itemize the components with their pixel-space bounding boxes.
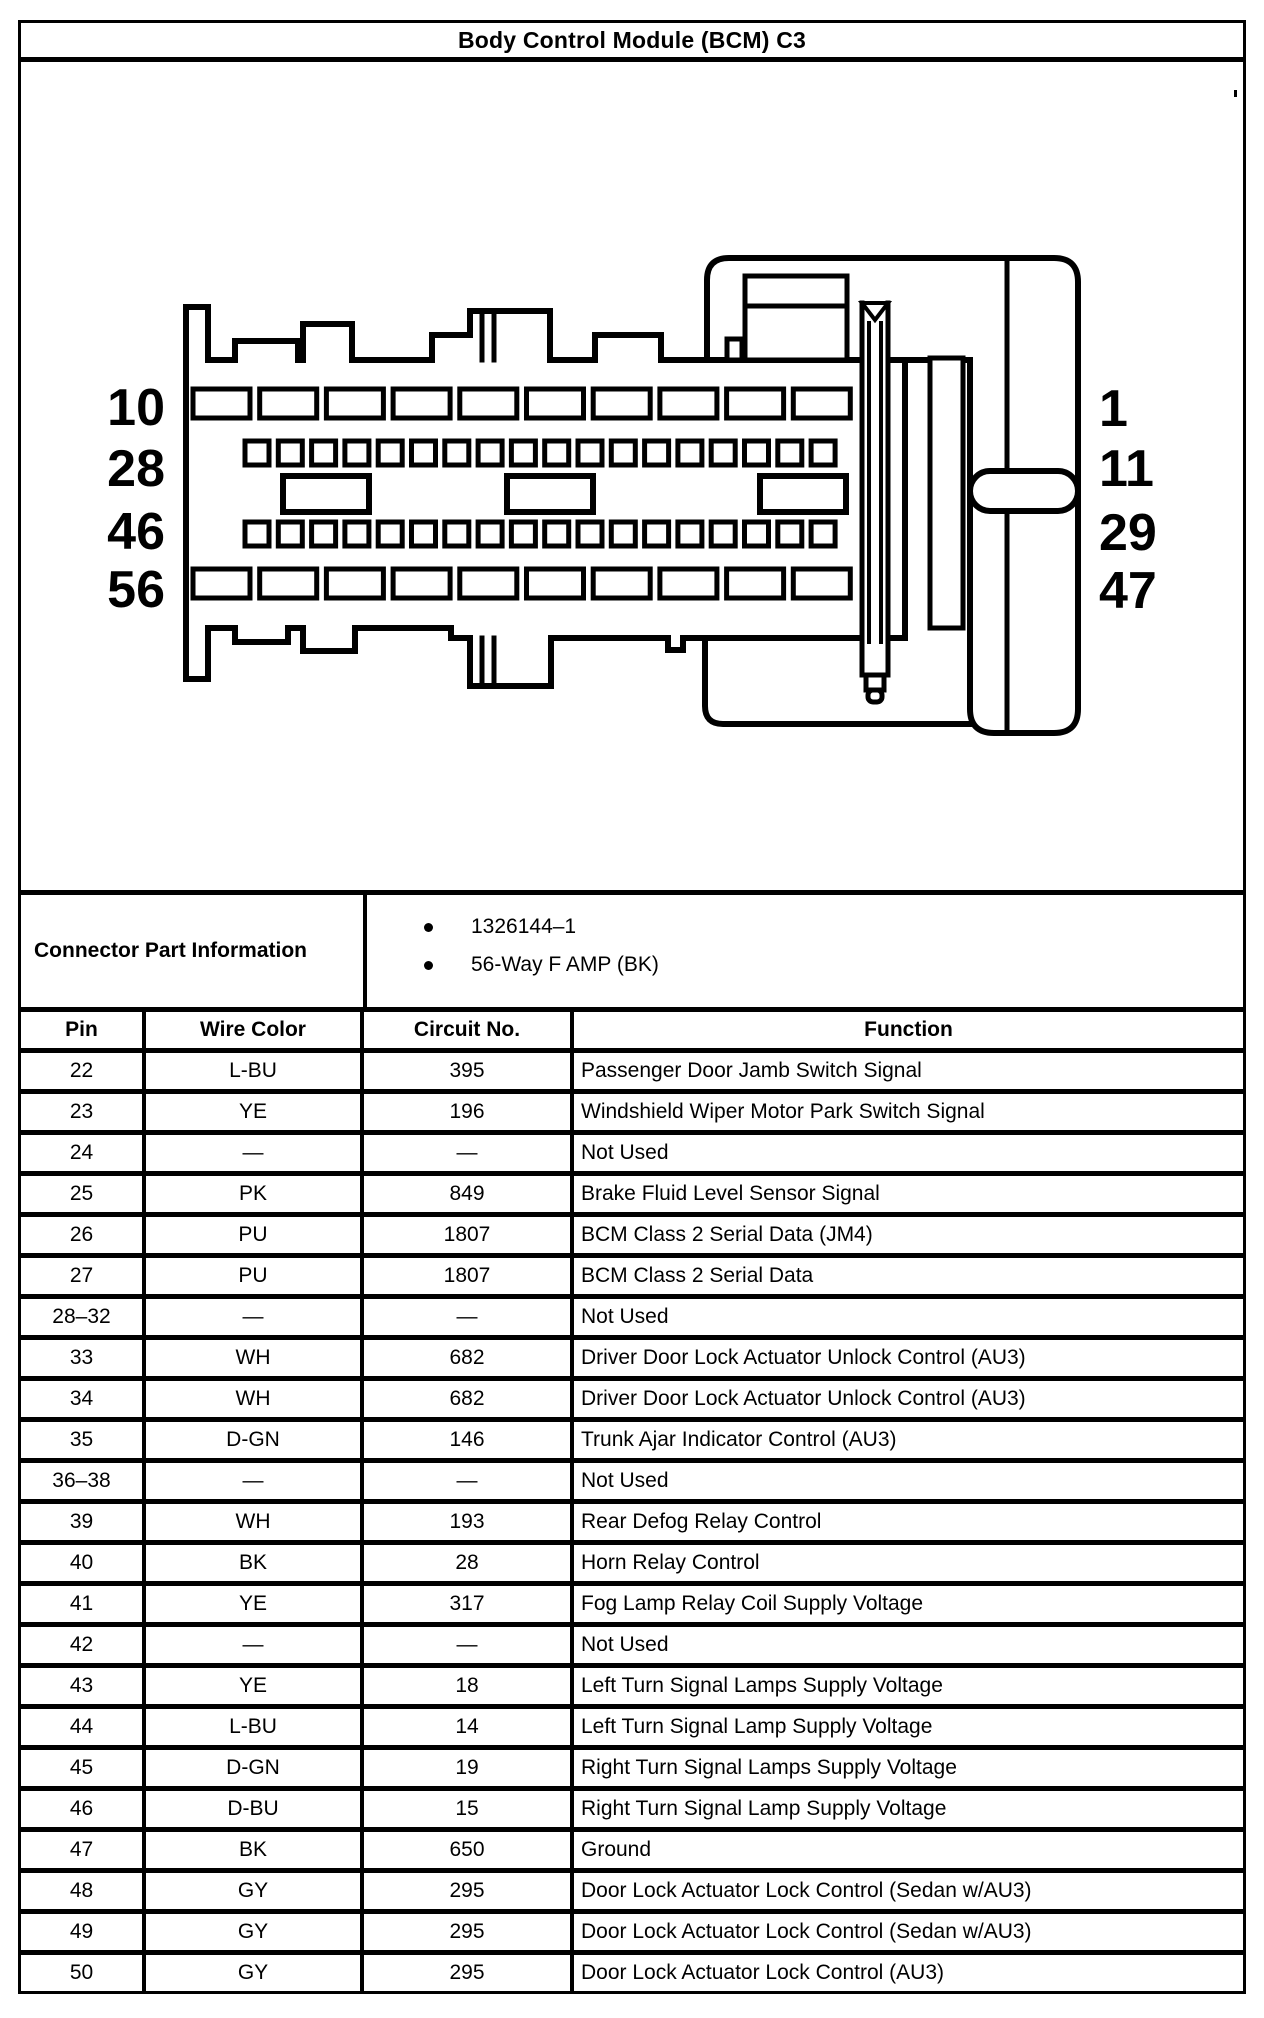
wire-color-cell: BK: [146, 1545, 364, 1581]
circuit-no-cell: 196: [364, 1094, 574, 1130]
pin-label-left-28: 28: [107, 440, 165, 498]
table-row: 44L-BU14Left Turn Signal Lamp Supply Vol…: [21, 1709, 1243, 1750]
wire-color-cell: GY: [146, 1873, 364, 1909]
latch-lance: [862, 303, 888, 702]
function-cell: Driver Door Lock Actuator Unlock Control…: [574, 1381, 1243, 1417]
part-info-text: 56-Way F AMP (BK): [471, 953, 659, 977]
function-cell: Left Turn Signal Lamp Supply Voltage: [574, 1709, 1243, 1745]
table-row: 33WH682Driver Door Lock Actuator Unlock …: [21, 1340, 1243, 1381]
table-row: 39WH193Rear Defog Relay Control: [21, 1504, 1243, 1545]
function-cell: Windshield Wiper Motor Park Switch Signa…: [574, 1094, 1243, 1130]
pin-cell: 34: [21, 1381, 146, 1417]
table-row: 42——Not Used: [21, 1627, 1243, 1668]
page-title: Body Control Module (BCM) C3: [21, 23, 1243, 62]
part-info-text: 1326144–1: [471, 915, 576, 939]
circuit-no-cell: 650: [364, 1832, 574, 1868]
connector-body-outline: [186, 307, 905, 686]
connector-part-info-label: Connector Part Information: [21, 895, 367, 1007]
manual-page: Body Control Module (BCM) C3: [18, 20, 1246, 1994]
band-small-bump: [727, 339, 742, 360]
wire-color-cell: WH: [146, 1504, 364, 1540]
wire-color-cell: —: [146, 1627, 364, 1663]
wire-color-cell: YE: [146, 1668, 364, 1704]
pin-cell: 46: [21, 1791, 146, 1827]
circuit-no-cell: 1807: [364, 1258, 574, 1294]
function-cell: Horn Relay Control: [574, 1545, 1243, 1581]
pin-cell: 43: [21, 1668, 146, 1704]
function-cell: Driver Door Lock Actuator Unlock Control…: [574, 1340, 1243, 1376]
pin-table-rows: 22L-BU395Passenger Door Jamb Switch Sign…: [21, 1053, 1243, 1991]
pin-cell: 28–32: [21, 1299, 146, 1335]
pin-table: Pin Wire Color Circuit No. Function 22L-…: [21, 1012, 1243, 1991]
pin-label-right-29: 29: [1099, 504, 1157, 562]
table-row: 41YE317Fog Lamp Relay Coil Supply Voltag…: [21, 1586, 1243, 1627]
header-wire-color: Wire Color: [146, 1012, 364, 1048]
circuit-no-cell: 295: [364, 1873, 574, 1909]
pin-cell: 24: [21, 1135, 146, 1171]
pin-cell: 26: [21, 1217, 146, 1253]
table-row: 28–32——Not Used: [21, 1299, 1243, 1340]
wire-color-cell: L-BU: [146, 1053, 364, 1089]
table-row: 35D-GN146Trunk Ajar Indicator Control (A…: [21, 1422, 1243, 1463]
function-cell: Not Used: [574, 1299, 1243, 1335]
pin-cell: 41: [21, 1586, 146, 1622]
circuit-no-cell: 15: [364, 1791, 574, 1827]
circuit-no-cell: 18: [364, 1668, 574, 1704]
circuit-no-cell: —: [364, 1299, 574, 1335]
pin-cell: 33: [21, 1340, 146, 1376]
table-row: 27PU1807BCM Class 2 Serial Data: [21, 1258, 1243, 1299]
pin-cell: 39: [21, 1504, 146, 1540]
table-row: 25PK849Brake Fluid Level Sensor Signal: [21, 1176, 1243, 1217]
function-cell: Brake Fluid Level Sensor Signal: [574, 1176, 1243, 1212]
wire-color-cell: WH: [146, 1381, 364, 1417]
connector-part-info: Connector Part Information 1326144–156-W…: [21, 895, 1243, 1012]
circuit-no-cell: —: [364, 1135, 574, 1171]
pin-label-right-47: 47: [1099, 562, 1157, 620]
pin-cell: 22: [21, 1053, 146, 1089]
circuit-no-cell: —: [364, 1627, 574, 1663]
pin-cell: 25: [21, 1176, 146, 1212]
function-cell: Trunk Ajar Indicator Control (AU3): [574, 1422, 1243, 1458]
circuit-no-cell: 849: [364, 1176, 574, 1212]
table-row: 40BK28Horn Relay Control: [21, 1545, 1243, 1586]
pin-cell: 23: [21, 1094, 146, 1130]
pin-cell: 48: [21, 1873, 146, 1909]
wire-color-cell: BK: [146, 1832, 364, 1868]
wire-color-cell: L-BU: [146, 1709, 364, 1745]
table-row: 45D-GN19Right Turn Signal Lamps Supply V…: [21, 1750, 1243, 1791]
lever-pill: [970, 471, 1078, 511]
circuit-no-cell: 295: [364, 1914, 574, 1950]
circuit-no-cell: 317: [364, 1586, 574, 1622]
scan-mark: [1234, 90, 1237, 97]
table-row: 48GY295Door Lock Actuator Lock Control (…: [21, 1873, 1243, 1914]
function-cell: Ground: [574, 1832, 1243, 1868]
table-row: 24——Not Used: [21, 1135, 1243, 1176]
wire-color-cell: PU: [146, 1217, 364, 1253]
part-info-item: 1326144–1: [424, 915, 1243, 939]
wire-color-cell: D-GN: [146, 1750, 364, 1786]
circuit-no-cell: 14: [364, 1709, 574, 1745]
connector-diagram: 10 28 46 56 1 11 29 47: [21, 62, 1243, 895]
circuit-no-cell: 193: [364, 1504, 574, 1540]
pin-cell: 40: [21, 1545, 146, 1581]
circuit-no-cell: 28: [364, 1545, 574, 1581]
circuit-no-cell: 395: [364, 1053, 574, 1089]
pin-label-right-11: 11: [1099, 440, 1154, 498]
connector-bottom-tongue: [705, 638, 970, 724]
function-cell: BCM Class 2 Serial Data: [574, 1258, 1243, 1294]
circuit-no-cell: 146: [364, 1422, 574, 1458]
wire-color-cell: PU: [146, 1258, 364, 1294]
pin-cell: 47: [21, 1832, 146, 1868]
wire-color-cell: YE: [146, 1094, 364, 1130]
circuit-no-cell: 682: [364, 1381, 574, 1417]
table-row: 46D-BU15Right Turn Signal Lamp Supply Vo…: [21, 1791, 1243, 1832]
table-row: 34WH682Driver Door Lock Actuator Unlock …: [21, 1381, 1243, 1422]
pin-cell: 36–38: [21, 1463, 146, 1499]
pin-cell: 42: [21, 1627, 146, 1663]
pin-label-left-56: 56: [107, 561, 165, 619]
function-cell: BCM Class 2 Serial Data (JM4): [574, 1217, 1243, 1253]
wire-color-cell: PK: [146, 1176, 364, 1212]
function-cell: Rear Defog Relay Control: [574, 1504, 1243, 1540]
wire-color-cell: GY: [146, 1955, 364, 1991]
wire-color-cell: —: [146, 1299, 364, 1335]
wire-color-cell: YE: [146, 1586, 364, 1622]
table-row: 43YE18Left Turn Signal Lamps Supply Volt…: [21, 1668, 1243, 1709]
pin-cell: 35: [21, 1422, 146, 1458]
wire-color-cell: WH: [146, 1340, 364, 1376]
function-cell: Not Used: [574, 1627, 1243, 1663]
connector-drawing-svg: 10 28 46 56 1 11 29 47: [21, 62, 1243, 890]
pin-label-left-46: 46: [107, 503, 165, 561]
bullet-icon: [424, 961, 433, 970]
pin-cell: 50: [21, 1955, 146, 1991]
circuit-no-cell: 1807: [364, 1217, 574, 1253]
function-cell: Right Turn Signal Lamps Supply Voltage: [574, 1750, 1243, 1786]
circuit-no-cell: 295: [364, 1955, 574, 1991]
table-row: 23YE196Windshield Wiper Motor Park Switc…: [21, 1094, 1243, 1135]
function-cell: Not Used: [574, 1463, 1243, 1499]
function-cell: Door Lock Actuator Lock Control (Sedan w…: [574, 1914, 1243, 1950]
right-mid-rect: [930, 358, 963, 628]
pin-label-right-1: 1: [1099, 380, 1128, 438]
function-cell: Door Lock Actuator Lock Control (AU3): [574, 1955, 1243, 1991]
function-cell: Right Turn Signal Lamp Supply Voltage: [574, 1791, 1243, 1827]
wire-color-cell: D-GN: [146, 1422, 364, 1458]
header-function: Function: [574, 1012, 1243, 1048]
function-cell: Left Turn Signal Lamps Supply Voltage: [574, 1668, 1243, 1704]
pin-cell: 49: [21, 1914, 146, 1950]
header-circuit-no: Circuit No.: [364, 1012, 574, 1048]
bullet-icon: [424, 923, 433, 932]
table-row: 26PU1807BCM Class 2 Serial Data (JM4): [21, 1217, 1243, 1258]
table-row: 22L-BU395Passenger Door Jamb Switch Sign…: [21, 1053, 1243, 1094]
table-row: 49GY295Door Lock Actuator Lock Control (…: [21, 1914, 1243, 1955]
table-row: 47BK650Ground: [21, 1832, 1243, 1873]
function-cell: Door Lock Actuator Lock Control (Sedan w…: [574, 1873, 1243, 1909]
function-cell: Not Used: [574, 1135, 1243, 1171]
wire-color-cell: —: [146, 1463, 364, 1499]
header-pin: Pin: [21, 1012, 146, 1048]
circuit-no-cell: —: [364, 1463, 574, 1499]
wire-color-cell: —: [146, 1135, 364, 1171]
pin-cell: 45: [21, 1750, 146, 1786]
circuit-no-cell: 19: [364, 1750, 574, 1786]
wire-color-cell: D-BU: [146, 1791, 364, 1827]
pin-table-header: Pin Wire Color Circuit No. Function: [21, 1012, 1243, 1053]
table-row: 50GY295Door Lock Actuator Lock Control (…: [21, 1955, 1243, 1991]
band-tab: [745, 276, 847, 360]
connector-part-info-list: 1326144–156-Way F AMP (BK): [367, 895, 1243, 1007]
pin-cell: 27: [21, 1258, 146, 1294]
part-info-item: 56-Way F AMP (BK): [424, 953, 1243, 977]
pin-label-left-10: 10: [107, 379, 165, 437]
wire-color-cell: GY: [146, 1914, 364, 1950]
function-cell: Passenger Door Jamb Switch Signal: [574, 1053, 1243, 1089]
circuit-no-cell: 682: [364, 1340, 574, 1376]
function-cell: Fog Lamp Relay Coil Supply Voltage: [574, 1586, 1243, 1622]
pin-cell: 44: [21, 1709, 146, 1745]
table-row: 36–38——Not Used: [21, 1463, 1243, 1504]
